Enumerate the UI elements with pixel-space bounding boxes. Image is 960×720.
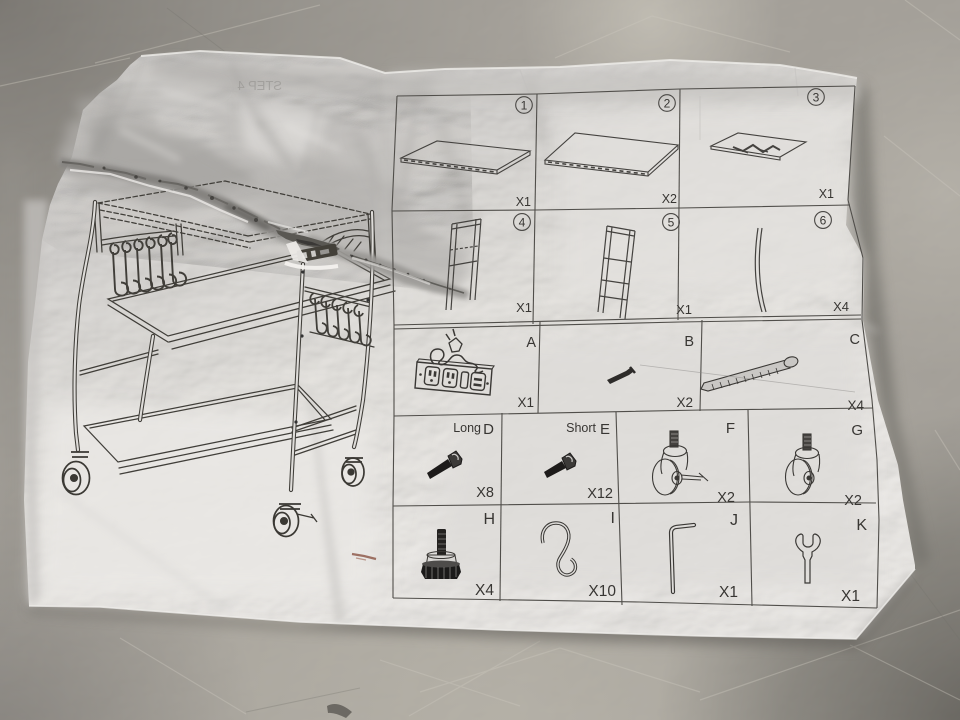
svg-text:X4: X4 xyxy=(833,299,849,314)
svg-text:STEP 4: STEP 4 xyxy=(237,78,282,93)
svg-text:B: B xyxy=(684,334,694,350)
svg-text:Long: Long xyxy=(453,421,481,435)
svg-text:X4: X4 xyxy=(847,398,864,413)
svg-text:H: H xyxy=(483,511,495,528)
svg-text:X1: X1 xyxy=(841,588,860,605)
svg-text:C: C xyxy=(850,332,860,348)
svg-text:X1: X1 xyxy=(516,300,532,315)
svg-text:6: 6 xyxy=(820,214,827,228)
svg-text:X10: X10 xyxy=(588,583,616,600)
svg-text:X2: X2 xyxy=(844,493,862,509)
svg-text:5: 5 xyxy=(668,216,675,230)
svg-text:E: E xyxy=(600,421,610,438)
svg-text:X1: X1 xyxy=(517,395,534,410)
svg-text:G: G xyxy=(851,422,863,439)
svg-text:J: J xyxy=(730,512,738,529)
svg-text:X12: X12 xyxy=(587,486,613,502)
svg-text:X2: X2 xyxy=(717,490,735,506)
svg-text:X4: X4 xyxy=(475,582,494,599)
svg-text:A: A xyxy=(526,335,536,351)
svg-text:X8: X8 xyxy=(476,485,494,501)
svg-text:X2: X2 xyxy=(676,395,693,410)
svg-text:X1: X1 xyxy=(819,187,834,201)
svg-text:X2: X2 xyxy=(662,192,677,206)
svg-text:4: 4 xyxy=(519,216,526,230)
svg-text:3: 3 xyxy=(813,91,820,105)
svg-text:I: I xyxy=(611,510,615,527)
svg-text:X1: X1 xyxy=(676,302,692,317)
svg-text:X1: X1 xyxy=(516,195,531,209)
svg-text:K: K xyxy=(856,517,867,534)
svg-text:Short: Short xyxy=(566,421,596,435)
svg-text:2: 2 xyxy=(664,97,671,111)
svg-text:D: D xyxy=(483,421,494,438)
svg-text:F: F xyxy=(726,420,735,437)
svg-text:X1: X1 xyxy=(719,584,738,601)
svg-text:1: 1 xyxy=(521,99,528,113)
